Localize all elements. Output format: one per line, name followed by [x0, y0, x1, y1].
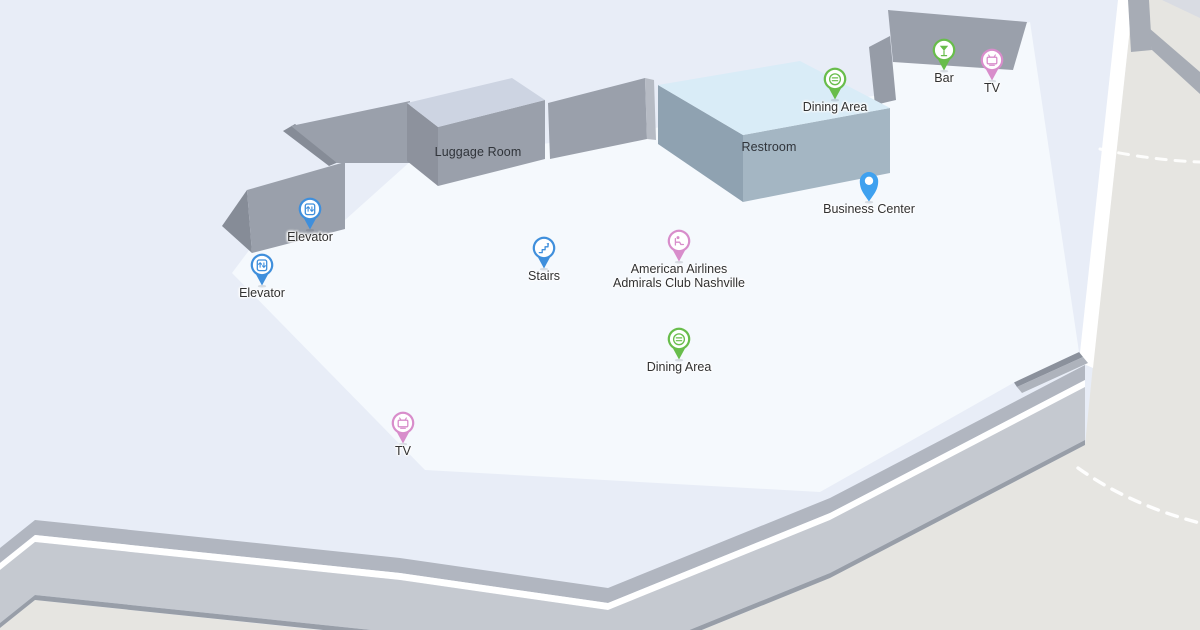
marker-label: TV [395, 444, 411, 458]
cocktail-icon [930, 37, 958, 73]
marker-label: Dining Area [803, 100, 868, 114]
room-label-luggage: Luggage Room [435, 145, 522, 159]
pin-shape [533, 237, 556, 271]
room-label-restroom: Restroom [742, 140, 797, 154]
marker-label: Dining Area [647, 360, 712, 374]
marker-label: Elevator [239, 286, 285, 300]
tv-icon [978, 47, 1006, 83]
dining-icon [821, 66, 849, 102]
indoor-map[interactable]: Luggage Room Restroom Elevator Elevator … [0, 0, 1200, 630]
pin-dot [865, 177, 873, 185]
dining-icon [665, 326, 693, 362]
pin-shape [668, 230, 691, 264]
lounge-seat-icon [665, 228, 693, 264]
marker-label: Stairs [528, 269, 560, 283]
marker-label: Bar [934, 71, 953, 85]
marker-label: Business Center [823, 202, 915, 216]
seat-person-head [677, 236, 680, 239]
elevator-icon [296, 196, 324, 232]
outside-wall-vertical [1128, 0, 1152, 52]
marker-label-line2: Admirals Club Nashville [613, 276, 745, 290]
marker-label: American Airlines Admirals Club Nashvill… [613, 262, 745, 290]
tv-icon [389, 410, 417, 446]
map-basemap [0, 0, 1200, 630]
location-pin-icon [855, 168, 883, 204]
stairs-icon [530, 235, 558, 271]
pin-shape [860, 172, 878, 202]
marker-label: TV [984, 81, 1000, 95]
marker-label-line1: American Airlines [613, 262, 745, 276]
elevator-icon [248, 252, 276, 288]
marker-label: Elevator [287, 230, 333, 244]
